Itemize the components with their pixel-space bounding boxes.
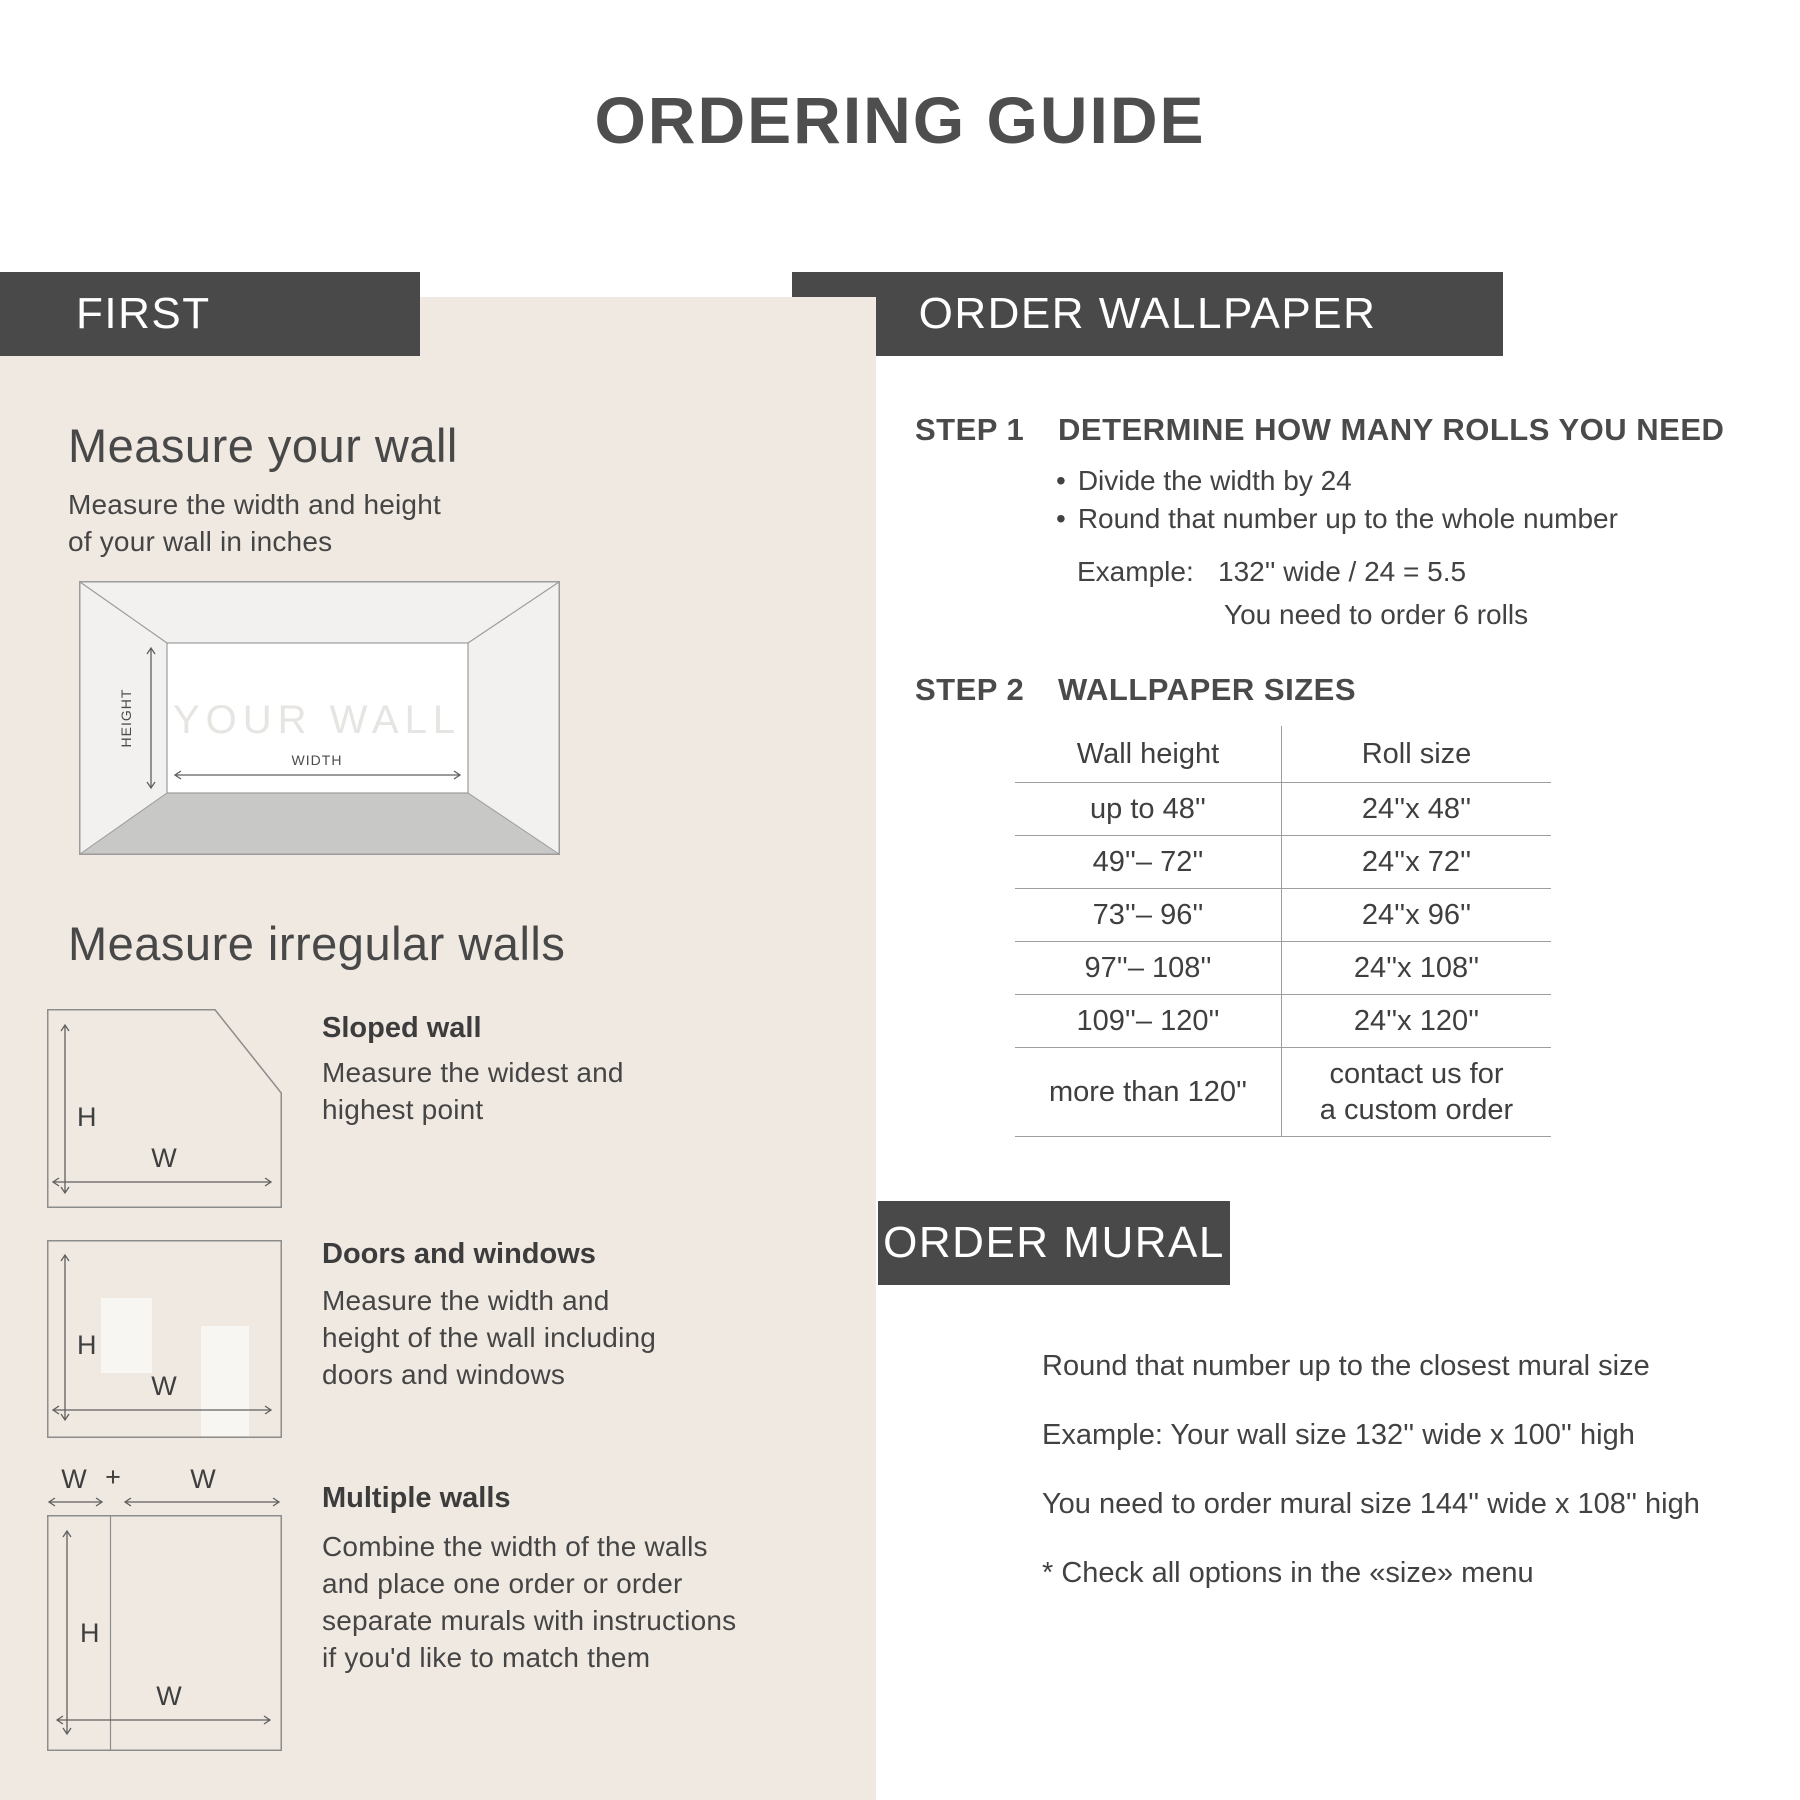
table-row: 97''– 108'' 24''x 108'': [1015, 941, 1551, 994]
sloped-wall-description: Measure the widest and highest point: [322, 1054, 624, 1128]
step2-label: STEP 2: [915, 672, 1024, 708]
window-shape: [101, 1298, 152, 1373]
step1-example-value: 132'' wide / 24 = 5.5: [1218, 556, 1466, 588]
multiple-h-label: H: [80, 1618, 100, 1648]
order-mural-description: Round that number up to the closest mura…: [1042, 1332, 1700, 1608]
table-row: 73''– 96'' 24''x 96'': [1015, 888, 1551, 941]
roll-size-cell: 24''x 108'': [1282, 942, 1551, 994]
col-header-roll-size: Roll size: [1282, 726, 1551, 782]
ordering-guide-page: ORDERING GUIDE ORDER WALLPAPER FIRST ORD…: [0, 0, 1800, 1800]
doors-windows-diagram: H W: [47, 1240, 282, 1438]
your-wall-watermark: YOUR WALL: [173, 698, 461, 742]
table-row: more than 120'' contact us for a custom …: [1015, 1047, 1551, 1136]
table-header-row: Wall height Roll size: [1015, 726, 1551, 782]
doors-windows-description: Measure the width and height of the wall…: [322, 1282, 656, 1393]
multiple-w-label: W: [156, 1681, 182, 1711]
table-row: 109''– 120'' 24''x 120'': [1015, 994, 1551, 1047]
multiple-plus-label: +: [105, 1462, 121, 1492]
roll-size-cell: contact us for a custom order: [1282, 1048, 1551, 1136]
multiple-w2-label: W: [190, 1464, 216, 1494]
wall-height-cell: 109''– 120'': [1015, 995, 1282, 1047]
order-wallpaper-bar-label: ORDER WALLPAPER: [919, 289, 1377, 338]
order-mural-bar: ORDER MURAL: [878, 1201, 1230, 1285]
step1-heading: DETERMINE HOW MANY ROLLS YOU NEED: [1058, 412, 1724, 448]
multiple-w1-label: W: [61, 1464, 87, 1494]
wall-height-cell: up to 48'': [1015, 783, 1282, 835]
multiple-walls-diagram: W + W H W: [47, 1462, 282, 1754]
doors-h-label: H: [77, 1330, 97, 1360]
sloped-wall-diagram: H W: [47, 1009, 282, 1208]
doors-windows-title: Doors and windows: [322, 1238, 596, 1271]
step2-heading: WALLPAPER SIZES: [1058, 672, 1356, 708]
wall-height-cell: 97''– 108'': [1015, 942, 1282, 994]
order-mural-bar-label: ORDER MURAL: [883, 1218, 1225, 1267]
irregular-walls-heading: Measure irregular walls: [68, 916, 565, 971]
roll-size-cell: 24''x 120'': [1282, 995, 1551, 1047]
step1-bullet-1: Divide the width by 24: [1056, 462, 1618, 500]
multiple-walls-description: Combine the width of the walls and place…: [322, 1528, 736, 1676]
step1-example-note: You need to order 6 rolls: [1224, 599, 1528, 631]
doors-w-label: W: [151, 1371, 177, 1401]
sloped-h-label: H: [77, 1102, 97, 1132]
sloped-wall-title: Sloped wall: [322, 1012, 482, 1045]
step1-bullet-2: Round that number up to the whole number: [1056, 500, 1618, 538]
sloped-w-label: W: [151, 1143, 177, 1173]
wall-height-cell: 73''– 96'': [1015, 889, 1282, 941]
roll-size-cell: 24''x 96'': [1282, 889, 1551, 941]
multiple-walls-title: Multiple walls: [322, 1482, 511, 1515]
room-perspective-diagram: YOUR WALL HEIGHT WIDTH: [79, 581, 560, 855]
wall-height-cell: more than 120'': [1015, 1048, 1282, 1136]
first-section-bar-label: FIRST: [76, 289, 211, 338]
step1-example-label: Example:: [1077, 556, 1194, 588]
page-title: ORDERING GUIDE: [0, 82, 1800, 158]
step1-label: STEP 1: [915, 412, 1024, 448]
wall-height-cell: 49''– 72'': [1015, 836, 1282, 888]
wallpaper-sizes-table: Wall height Roll size up to 48'' 24''x 4…: [1015, 726, 1551, 1137]
roll-size-cell: 24''x 72'': [1282, 836, 1551, 888]
first-section-bar: FIRST: [0, 272, 420, 356]
order-wallpaper-bar: ORDER WALLPAPER: [792, 272, 1503, 356]
roll-size-cell: 24''x 48'': [1282, 783, 1551, 835]
table-row: 49''– 72'' 24''x 72'': [1015, 835, 1551, 888]
width-arrow-label: WIDTH: [292, 752, 343, 768]
measure-wall-heading: Measure your wall: [68, 418, 458, 473]
measure-wall-description: Measure the width and height of your wal…: [68, 486, 441, 560]
col-header-wall-height: Wall height: [1015, 726, 1282, 782]
step1-bullet-list: Divide the width by 24 Round that number…: [1056, 462, 1618, 538]
height-arrow-label: HEIGHT: [118, 689, 134, 748]
door-shape: [201, 1326, 249, 1436]
table-row: up to 48'' 24''x 48'': [1015, 782, 1551, 835]
